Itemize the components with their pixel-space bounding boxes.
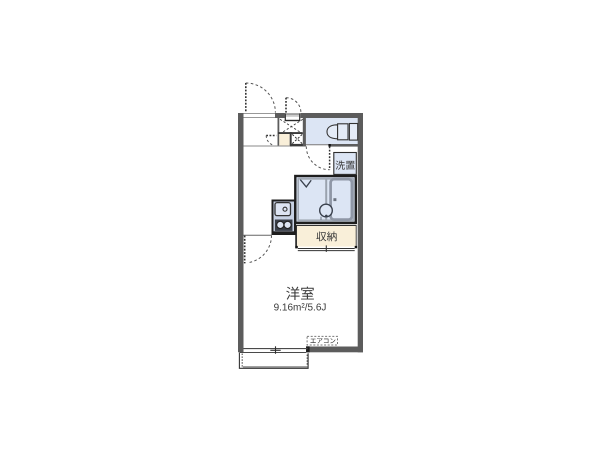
svg-text:9.16m²/5.6J: 9.16m²/5.6J	[274, 303, 327, 314]
